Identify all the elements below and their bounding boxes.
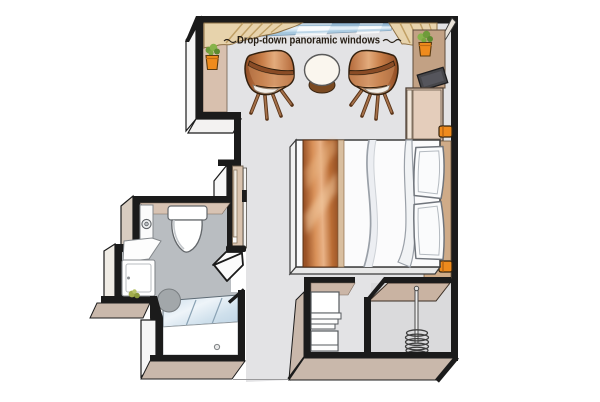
svg-text:Drop-down panoramic windows: Drop-down panoramic windows: [237, 35, 380, 47]
